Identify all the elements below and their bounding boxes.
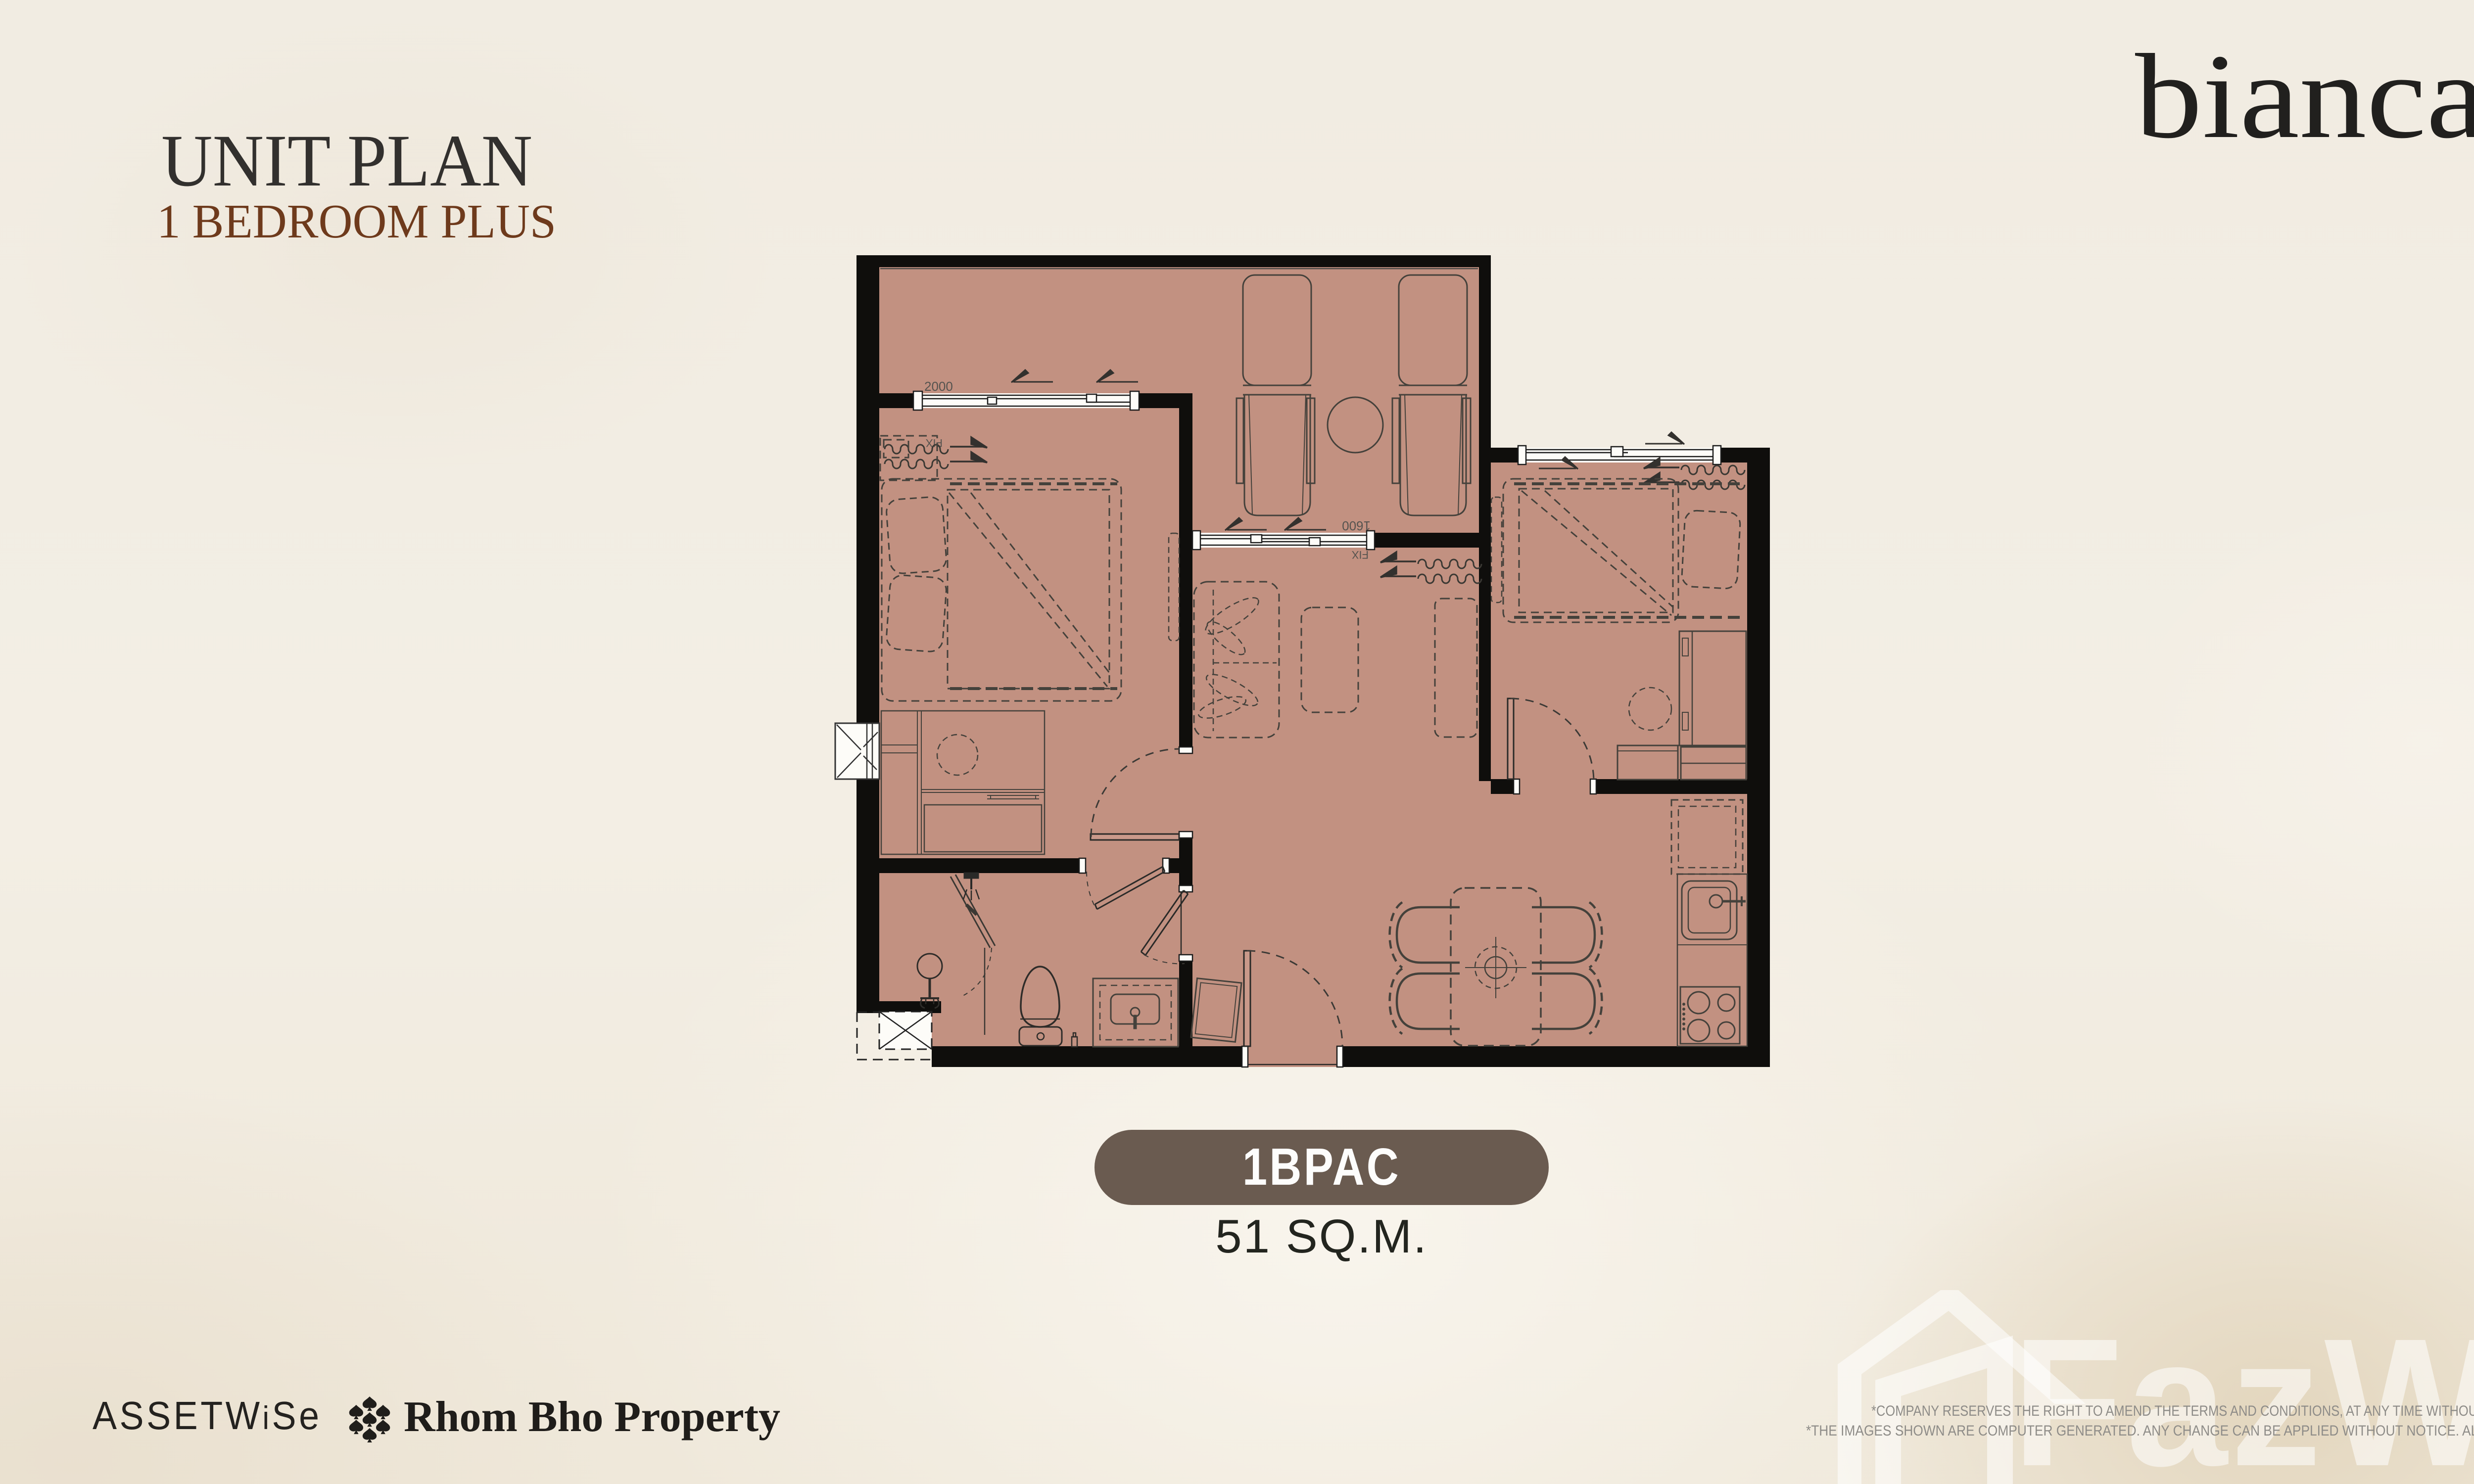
svg-text:FazWaz: FazWaz [2012,1300,2474,1484]
svg-text:FIX: FIX [1351,549,1369,561]
svg-text:1600: 1600 [1342,518,1371,533]
svg-text:2000: 2000 [924,379,953,394]
